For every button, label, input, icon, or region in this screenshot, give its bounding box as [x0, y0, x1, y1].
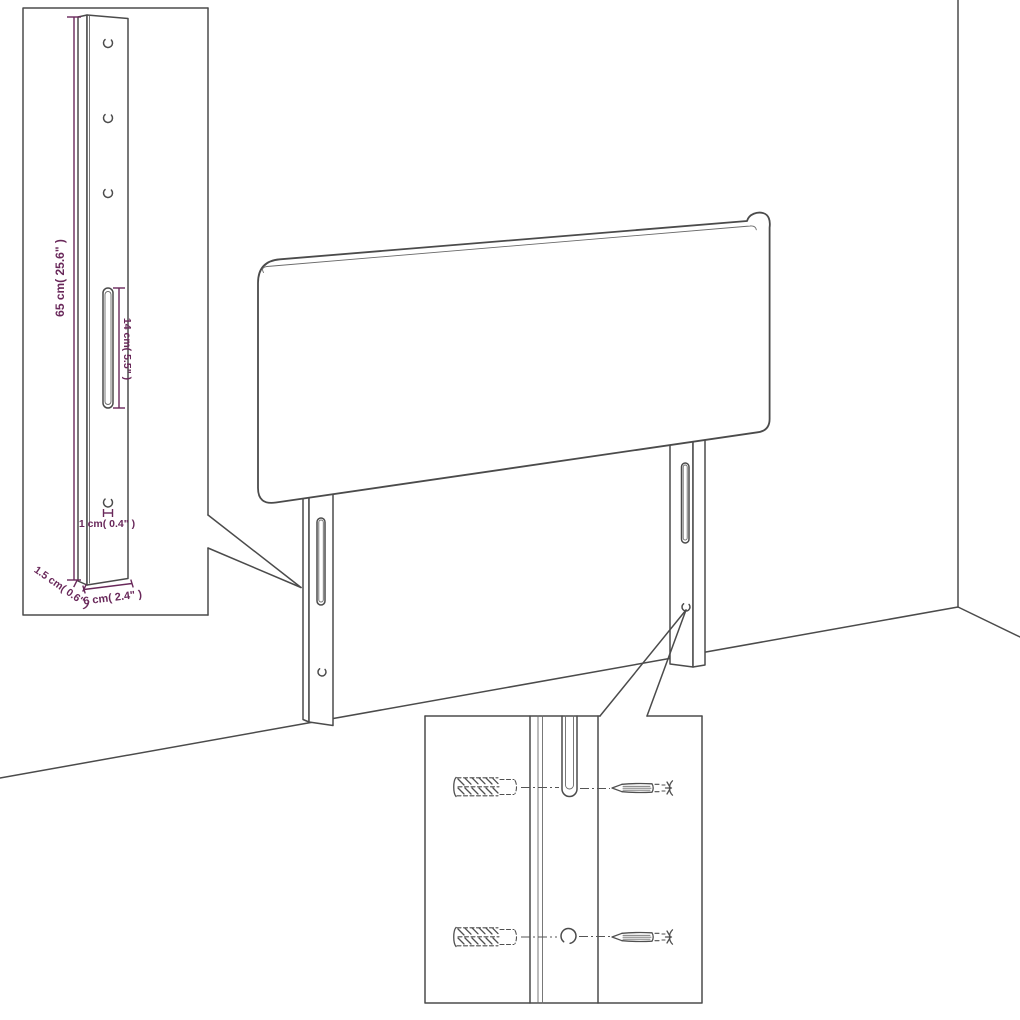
- dimension-slot-label: 14 cm( 5.5" ): [121, 318, 133, 380]
- right-leg-side-face: [693, 430, 705, 667]
- leg-strip-hole: [558, 925, 579, 946]
- leg-strip-slot: [562, 716, 577, 797]
- dimension-width-label: 6 cm( 2.4" ): [83, 588, 143, 607]
- dimension-height: 65 cm( 25.6" ): [53, 17, 81, 580]
- inset-leg-side-face: [78, 15, 87, 585]
- leg-dimension-inset: 65 cm( 25.6" ) 14 cm( 5.5" ) 1 cm( 0.4" …: [23, 8, 208, 615]
- inset-leg-front-face: [87, 15, 128, 585]
- left-mounting-leg: [303, 488, 333, 726]
- leg-inset-callout-lines: [208, 515, 301, 588]
- inset-leg-drawing: [78, 15, 128, 585]
- left-leg-front-face: [309, 488, 333, 726]
- left-leg-side-face: [303, 490, 309, 722]
- dimension-hole-label: 1 cm( 0.4" ): [79, 518, 135, 530]
- right-mounting-leg: [670, 428, 705, 667]
- headboard: [258, 213, 770, 726]
- callout-line: [208, 548, 301, 588]
- right-leg-front-face: [670, 428, 693, 667]
- screw-icon: [612, 781, 673, 795]
- wall-plug-icon: [454, 928, 517, 947]
- dimension-height-label: 65 cm( 25.6" ): [53, 239, 67, 317]
- headboard-assembly-diagram: 65 cm( 25.6" ) 14 cm( 5.5" ) 1 cm( 0.4" …: [0, 0, 1020, 1020]
- floor-junction-right: [958, 607, 1020, 637]
- mounting-hardware-inset: [425, 716, 702, 1003]
- hardware-inset-box: [425, 716, 702, 1003]
- screw-icon: [612, 930, 673, 944]
- floor-junction-left: [0, 607, 958, 778]
- hardware-inset-leg-strip: [530, 716, 598, 1003]
- leg-strip-slot-inner: [566, 716, 574, 789]
- diagram-canvas: 65 cm( 25.6" ) 14 cm( 5.5" ) 1 cm( 0.4" …: [0, 0, 1020, 1020]
- wall-plug-icon: [454, 778, 517, 797]
- callout-line: [208, 515, 301, 588]
